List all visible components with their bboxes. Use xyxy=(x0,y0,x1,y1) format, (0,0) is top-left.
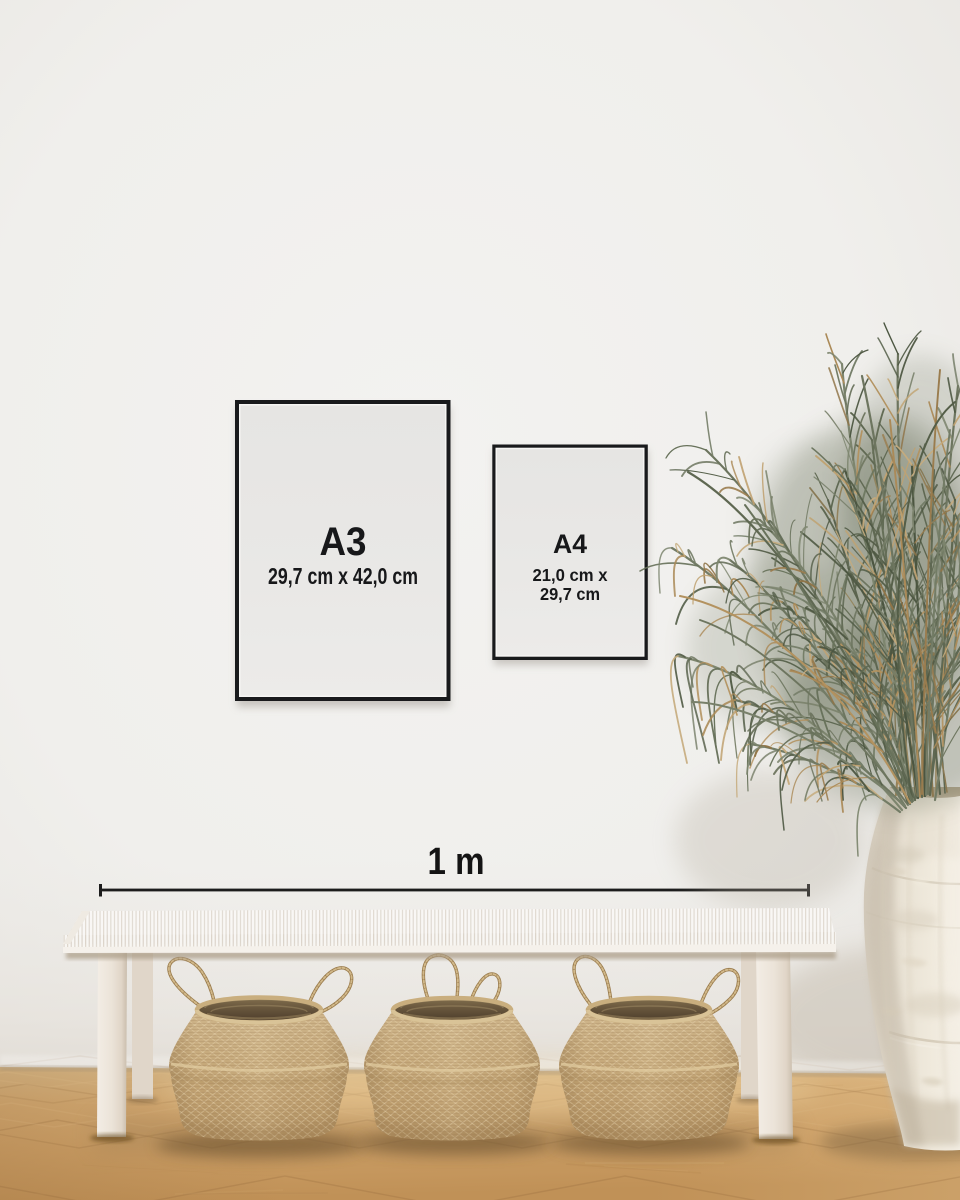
svg-text:A4: A4 xyxy=(553,529,587,559)
svg-text:1 m: 1 m xyxy=(428,841,485,883)
svg-text:29,7 cm x 42,0 cm: 29,7 cm x 42,0 cm xyxy=(268,563,418,589)
svg-text:21,0 cm x: 21,0 cm x xyxy=(533,565,608,585)
svg-text:29,7 cm: 29,7 cm xyxy=(540,584,600,604)
svg-text:A3: A3 xyxy=(320,520,367,564)
